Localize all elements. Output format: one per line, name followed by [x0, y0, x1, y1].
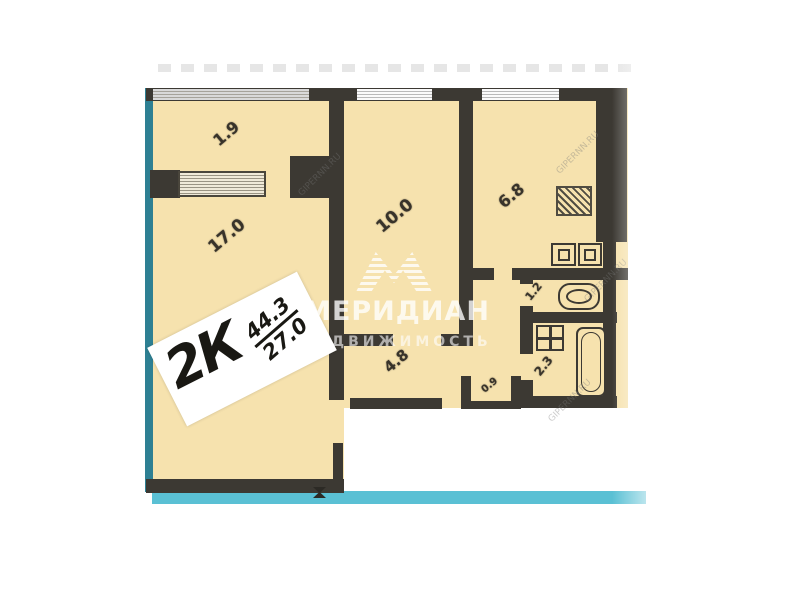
wall	[531, 312, 617, 323]
exterior-wall-line-left	[145, 88, 153, 492]
wall	[520, 396, 617, 408]
wall	[520, 268, 533, 284]
wall	[473, 268, 494, 280]
kitchen-window	[482, 89, 559, 100]
toilet-bowl	[566, 289, 592, 304]
wall	[461, 401, 521, 409]
page-edge-dashes	[158, 64, 632, 72]
bathtub-inner	[581, 332, 601, 392]
vent-shaft-icon	[556, 186, 592, 216]
wall	[329, 100, 344, 400]
living-room-floor-area	[146, 406, 344, 484]
kitchen-sink-icon	[551, 243, 576, 266]
bedroom-window	[357, 89, 432, 100]
apartment-area-fraction: 44.3 27.0	[239, 291, 315, 366]
wall	[329, 334, 393, 346]
floor-plan-canvas: 1.9 17.0 10.0 6.8 4.8 1.2 2.3 0.9 2К 44.…	[0, 0, 800, 600]
balcony-door-window-unit	[178, 171, 266, 197]
stove-burner	[584, 249, 596, 261]
wall	[150, 170, 180, 198]
crop-fade-overlay	[612, 56, 694, 526]
sink-basin	[558, 249, 570, 261]
toilet-icon	[558, 283, 600, 310]
balcony-glazing-window	[153, 89, 309, 100]
bathtub-icon	[576, 327, 606, 397]
wall	[350, 398, 442, 409]
wall	[459, 100, 473, 346]
kitchen-stove-icon	[578, 243, 602, 266]
wall	[146, 479, 344, 493]
washbasin-icon	[536, 325, 564, 351]
